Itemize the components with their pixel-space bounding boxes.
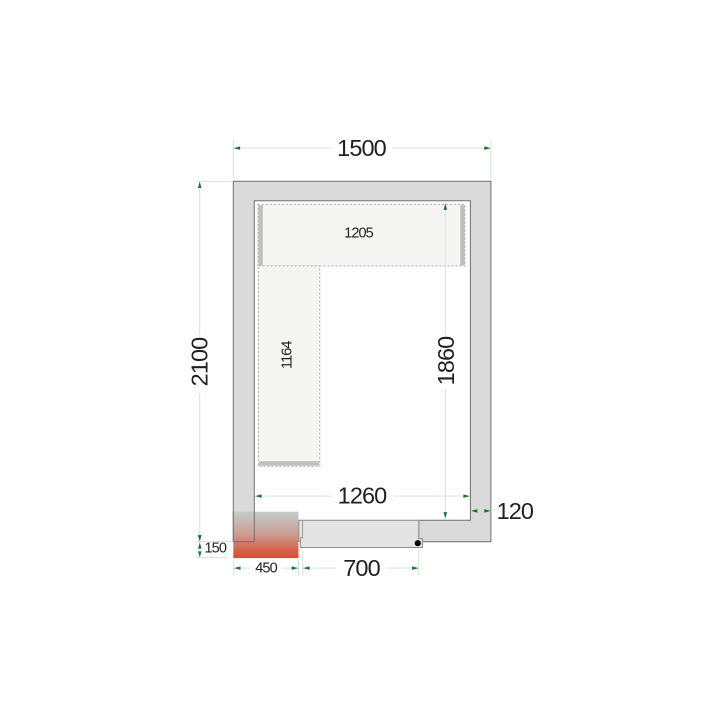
svg-text:2100: 2100 bbox=[187, 337, 213, 387]
svg-text:1260: 1260 bbox=[338, 483, 388, 509]
svg-text:1164: 1164 bbox=[280, 341, 296, 369]
svg-text:1860: 1860 bbox=[433, 336, 459, 386]
svg-text:1500: 1500 bbox=[337, 135, 387, 161]
svg-text:150: 150 bbox=[205, 541, 227, 557]
svg-text:700: 700 bbox=[343, 555, 380, 581]
svg-text:1205: 1205 bbox=[344, 226, 373, 242]
svg-text:450: 450 bbox=[255, 560, 277, 576]
svg-text:120: 120 bbox=[497, 498, 534, 524]
